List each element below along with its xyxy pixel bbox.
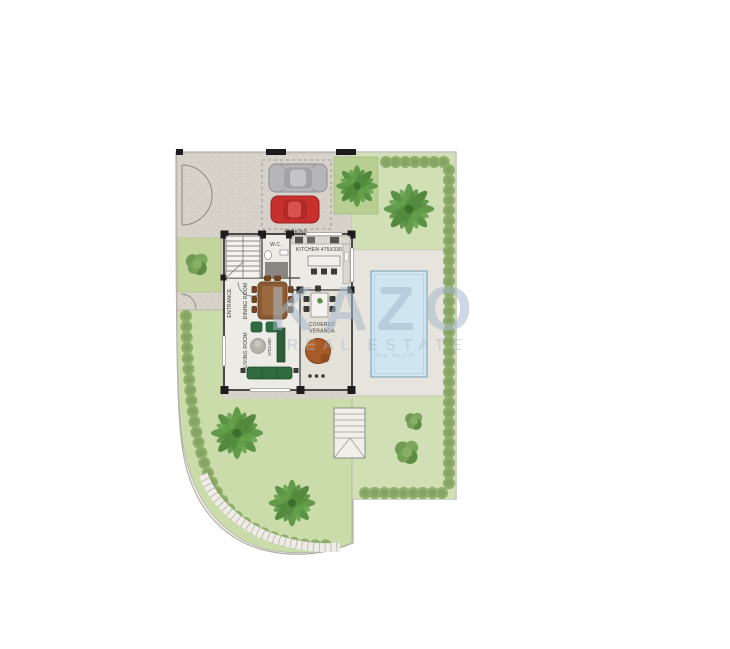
palm-by-parking [336, 165, 378, 207]
palm-left-garden [211, 407, 263, 459]
wc-label: W.C. [270, 242, 282, 248]
watermark-brand: KAZO [269, 275, 481, 344]
watermark-subtitle: REAL ESTATE [287, 337, 470, 354]
palm-bottom-garden [269, 480, 316, 527]
watermark: KAZO REAL ESTATE Reg. No.534 [269, 275, 481, 359]
floor-plan-page: PARKING [0, 0, 730, 649]
site-plan: PARKING [0, 0, 730, 649]
entrance-label: ENTRANCE [227, 288, 233, 318]
staircase [226, 236, 260, 278]
palm-right-garden [384, 184, 434, 234]
watermark-fineprint: Reg. No.534 [375, 353, 414, 359]
dining-room-label: DINING ROOM [243, 283, 249, 320]
garden-stairs [334, 408, 365, 458]
kitchen-label: KITCHEN 475X330 [296, 247, 342, 253]
car-silver [269, 164, 327, 192]
living-room-label: LIVING ROOM [243, 332, 249, 368]
car-red [271, 196, 319, 223]
